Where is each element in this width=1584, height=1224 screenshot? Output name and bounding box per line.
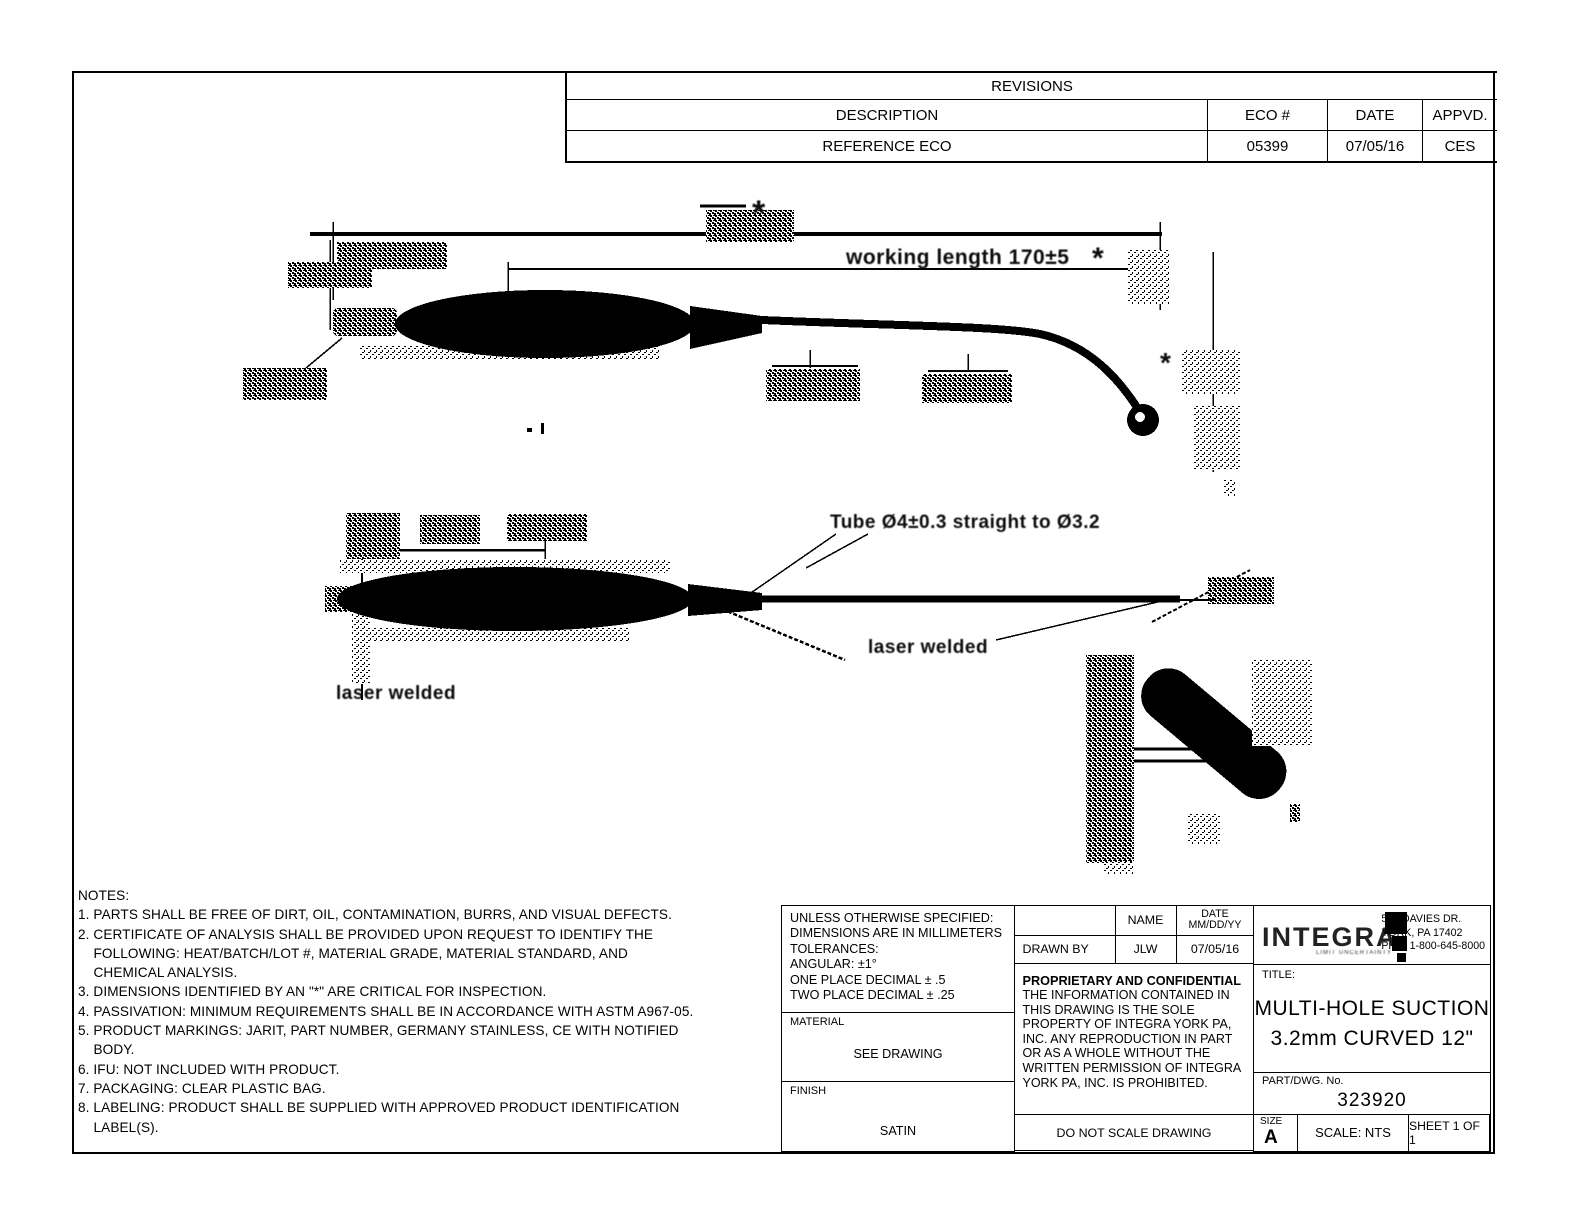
- revisions-title: REVISIONS: [567, 73, 1497, 99]
- revisions-header-row: DESCRIPTION ECO # DATE APPVD.: [567, 99, 1497, 130]
- size-label: SIZE: [1260, 1116, 1297, 1127]
- company-box: INTEGRA. LIMIT UNCERTAINTY 589 DAVIES DR…: [1253, 905, 1491, 965]
- col-date: DATE: [1327, 100, 1422, 130]
- do-not-scale-box: DO NOT SCALE DRAWING: [1014, 1114, 1255, 1151]
- sheet-box: SHEET 1 OF 1: [1408, 1114, 1491, 1152]
- revision-description: REFERENCE ECO: [567, 131, 1207, 161]
- revisions-table: REVISIONS DESCRIPTION ECO # DATE APPVD. …: [565, 71, 1497, 163]
- proprietary-body: THE INFORMATION CONTAINED IN THIS DRAWIN…: [1023, 988, 1241, 1090]
- part-number: 323920: [1254, 1090, 1490, 1112]
- scale-box: SCALE: NTS: [1297, 1114, 1410, 1152]
- title-box: TITLE: MULTI-HOLE SUCTION 3.2mm CURVED 1…: [1253, 964, 1491, 1074]
- name-header: NAME: [1115, 906, 1176, 935]
- material-label: MATERIAL: [790, 1016, 1014, 1028]
- revision-date: 07/05/16: [1327, 131, 1422, 161]
- revision-row: REFERENCE ECO 05399 07/05/16 CES: [567, 130, 1497, 161]
- part-label: PART/DWG. No.: [1262, 1075, 1490, 1087]
- drawing-title-line1: MULTI-HOLE SUCTION: [1254, 997, 1490, 1021]
- empty-cell: [1015, 906, 1115, 935]
- date-header: DATE MM/DD/YY: [1176, 906, 1254, 935]
- size-box: SIZE A: [1253, 1114, 1298, 1152]
- finish-value: SATIN: [782, 1124, 1014, 1138]
- title-label: TITLE:: [1262, 969, 1490, 981]
- revision-eco: 05399: [1207, 131, 1327, 161]
- drawing-title-line2: 3.2mm CURVED 12": [1254, 1027, 1490, 1051]
- proprietary-title: PROPRIETARY AND CONFIDENTIAL: [1023, 974, 1242, 988]
- part-number-box: PART/DWG. No. 323920: [1253, 1072, 1491, 1115]
- drawn-by-row: DRAWN BY JLW 07/05/16: [1015, 935, 1254, 964]
- drawing-sheet-page: { "revisions": { "title": "REVISIONS", "…: [0, 0, 1584, 1224]
- material-value: SEE DRAWING: [782, 1047, 1014, 1061]
- col-eco: ECO #: [1207, 100, 1327, 130]
- col-appvd: APPVD.: [1422, 100, 1497, 130]
- proprietary-box: PROPRIETARY AND CONFIDENTIAL THE INFORMA…: [1014, 963, 1255, 1116]
- logo-square-icon: [1397, 953, 1406, 962]
- size-value: A: [1264, 1127, 1278, 1149]
- finish-label: FINISH: [790, 1085, 1014, 1097]
- drawn-by-name: JLW: [1115, 936, 1176, 964]
- notes-block: NOTES: 1. PARTS SHALL BE FREE OF DIRT, O…: [78, 886, 773, 1137]
- tolerances-box: UNLESS OTHERWISE SPECIFIED: DIMENSIONS A…: [781, 905, 1015, 1013]
- drawn-by-date: 07/05/16: [1176, 936, 1254, 964]
- col-description: DESCRIPTION: [567, 100, 1207, 130]
- company-address: 589 DAVIES DR. YORK, PA 17402 PHN. 1-800…: [1381, 913, 1485, 954]
- name-date-header-row: NAME DATE MM/DD/YY: [1015, 906, 1254, 935]
- material-box: MATERIAL SEE DRAWING: [781, 1012, 1015, 1082]
- name-date-table: NAME DATE MM/DD/YY DRAWN BY JLW 07/05/16: [1014, 905, 1255, 964]
- finish-box: FINISH SATIN: [781, 1081, 1015, 1152]
- drawn-by-label: DRAWN BY: [1015, 936, 1115, 964]
- revision-appvd: CES: [1422, 131, 1497, 161]
